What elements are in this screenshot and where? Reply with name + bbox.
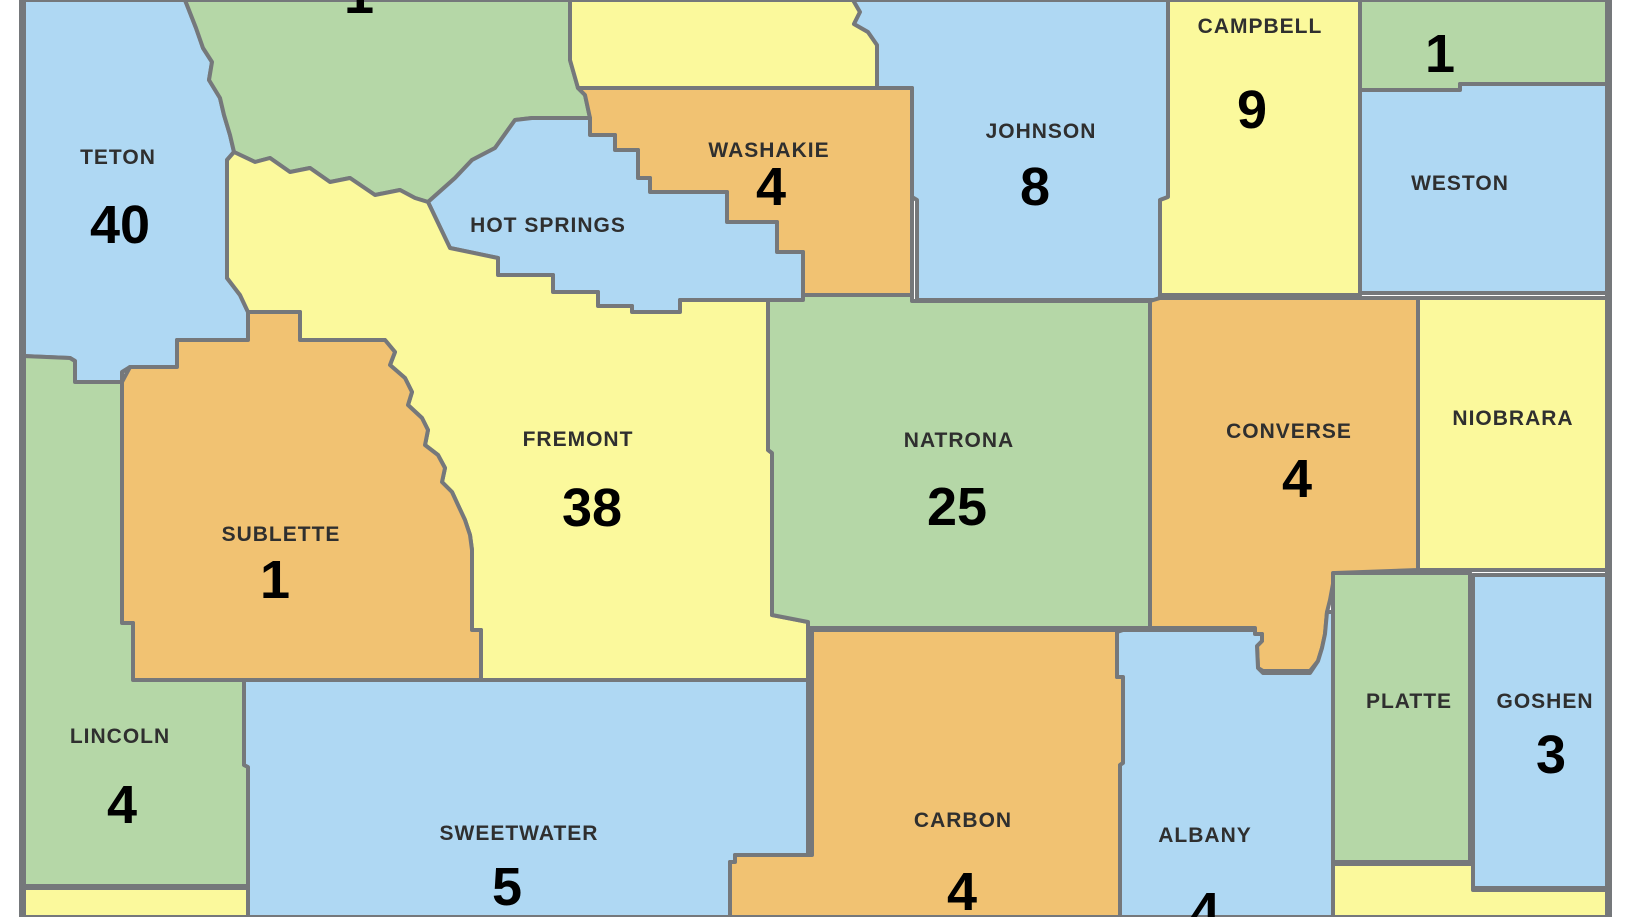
county-label-weston: WESTON [1411, 172, 1509, 195]
county-goshen: GOSHEN 3 [1473, 575, 1609, 888]
map-left-border [19, 0, 26, 917]
county-value-johnson: 8 [1020, 157, 1050, 217]
county-value-fremont: 38 [562, 478, 622, 538]
county-value-park-partial: 1 [344, 0, 374, 25]
county-label-goshen: GOSHEN [1496, 690, 1593, 713]
county-sweetwater: SWEETWATER 5 [244, 680, 808, 917]
county-value-albany: 4 [1190, 882, 1220, 917]
county-label-fremont: FREMONT [523, 428, 634, 451]
map-right-border [1605, 0, 1612, 917]
county-value-lincoln: 4 [107, 775, 137, 835]
county-label-campbell: CAMPBELL [1198, 15, 1323, 38]
county-label-johnson: JOHNSON [986, 120, 1097, 143]
county-value-carbon: 4 [947, 862, 977, 917]
county-label-carbon: CARBON [914, 809, 1012, 832]
county-label-teton: TETON [80, 146, 156, 169]
county-label-natrona: NATRONA [904, 429, 1014, 452]
county-natrona: NATRONA 25 [768, 295, 1150, 628]
county-value-teton: 40 [90, 195, 150, 255]
county-platte-shape [1333, 573, 1470, 862]
county-value-converse: 4 [1282, 449, 1312, 509]
county-label-converse: CONVERSE [1226, 420, 1352, 443]
county-label-niobrara: NIOBRARA [1452, 407, 1573, 430]
county-campbell: CAMPBELL 9 [1160, 0, 1360, 295]
county-crook-shape [1360, 0, 1609, 90]
county-value-sublette: 1 [260, 550, 290, 610]
county-value-campbell: 9 [1237, 80, 1267, 140]
county-uinta [22, 888, 248, 917]
county-campbell-shape [1160, 0, 1360, 295]
county-value-washakie: 4 [756, 157, 786, 217]
county-label-sublette: SUBLETTE [222, 523, 341, 546]
wyoming-county-map: TETON 40 1 JOHNSON 8 CAMPBELL 9 1 WESTON… [0, 0, 1630, 917]
county-value-crook: 1 [1425, 24, 1455, 84]
county-weston: WESTON [1360, 84, 1609, 293]
county-natrona-shape [768, 295, 1150, 628]
county-label-lincoln: LINCOLN [70, 725, 170, 748]
county-value-natrona: 25 [927, 477, 987, 537]
county-label-platte: PLATTE [1366, 690, 1452, 713]
county-big-horn-shape [570, 0, 877, 88]
county-platte: PLATTE [1333, 573, 1470, 862]
county-label-albany: ALBANY [1158, 824, 1252, 847]
county-value-goshen: 3 [1536, 725, 1566, 785]
county-label-hot-springs: HOT SPRINGS [470, 214, 626, 237]
county-niobrara-shape [1418, 298, 1609, 570]
county-crook: 1 [1360, 0, 1609, 90]
county-big-horn [570, 0, 877, 88]
county-uinta-shape [22, 888, 248, 917]
county-niobrara: NIOBRARA [1418, 298, 1609, 570]
county-sweetwater-shape [244, 680, 808, 917]
county-map-canvas: TETON 40 1 JOHNSON 8 CAMPBELL 9 1 WESTON… [0, 0, 1630, 917]
county-value-sweetwater: 5 [492, 857, 522, 917]
county-label-sweetwater: SWEETWATER [440, 822, 599, 845]
